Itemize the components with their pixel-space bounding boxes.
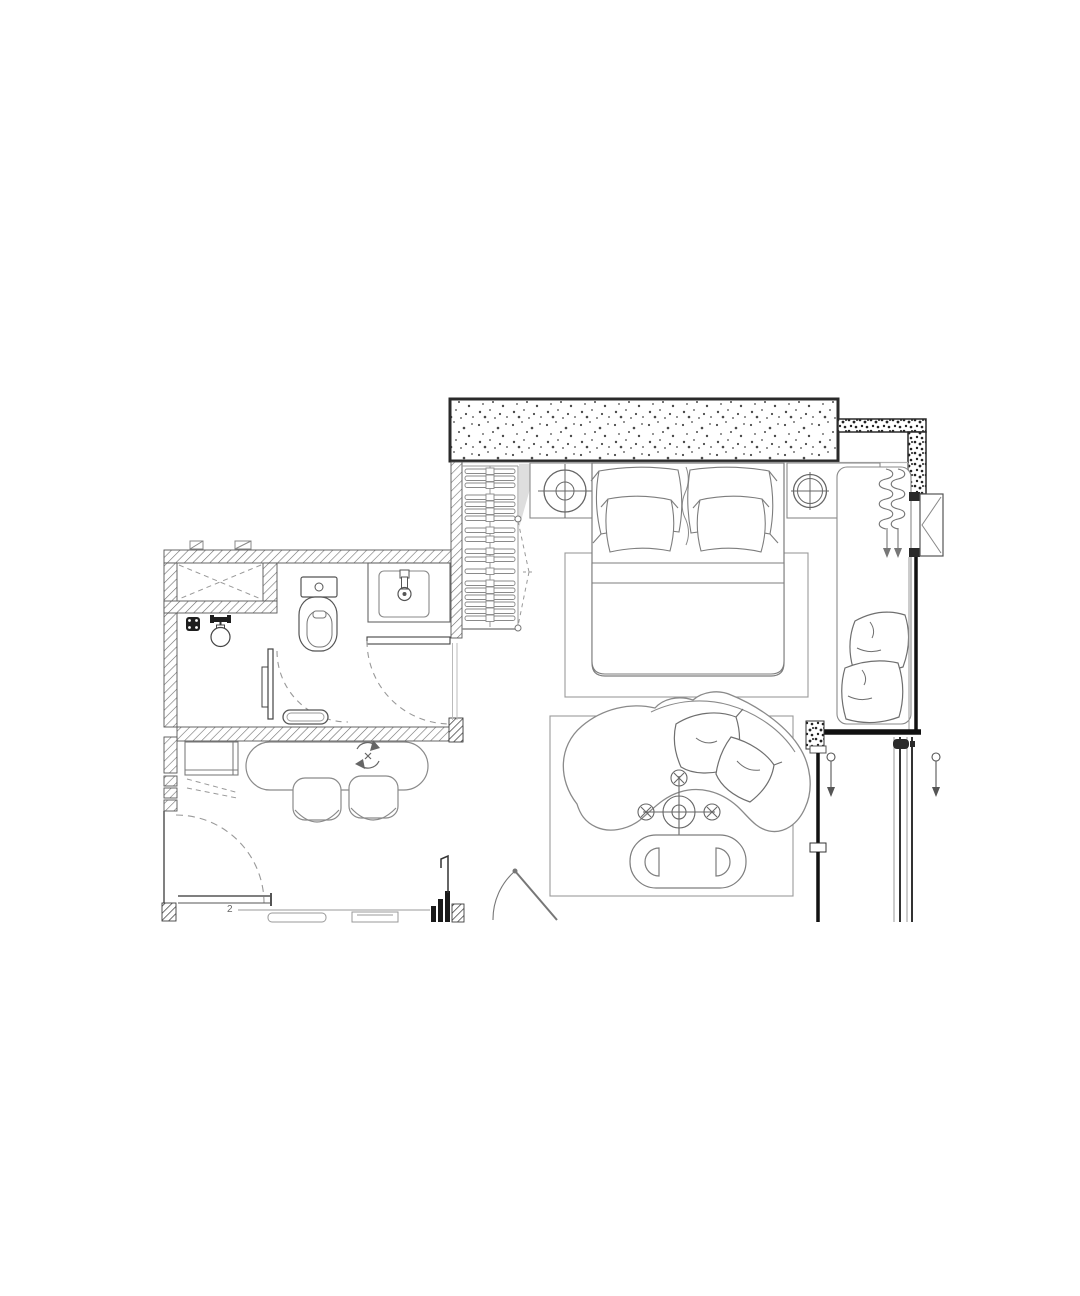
entry-console — [185, 742, 238, 775]
left-exterior-wall-upper — [164, 563, 177, 727]
bathroom — [177, 563, 450, 724]
dining-chair-2 — [349, 776, 398, 820]
bathroom-top-wall — [164, 550, 460, 563]
wall-top-marks — [190, 541, 251, 549]
door-jamb — [431, 856, 464, 922]
shower-mixer-icon — [210, 615, 231, 647]
wardrobe — [462, 464, 537, 631]
shower-bench — [283, 710, 328, 724]
washbasin — [368, 563, 450, 622]
appliance-2 — [352, 912, 398, 922]
balcony-pier — [806, 721, 824, 749]
fold-down-indication — [187, 779, 239, 798]
left-wall-block-2 — [164, 788, 177, 798]
appliance-1 — [268, 913, 326, 922]
bathroom-bottom-wall — [177, 727, 463, 741]
wardrobe-back-wall — [451, 462, 462, 638]
dining-chair-1 — [293, 778, 341, 822]
service-shaft — [177, 563, 263, 601]
concrete-band-top-right — [838, 419, 926, 432]
floor-plan-drawing: 2 — [0, 0, 1080, 1296]
double-bed — [591, 463, 784, 676]
wall-end-block — [449, 718, 463, 742]
bedroom — [530, 463, 911, 724]
casement-window-icon — [909, 492, 943, 557]
coffee-table — [630, 835, 746, 888]
window-daybed — [837, 467, 911, 724]
entry-door-swing — [176, 815, 264, 903]
shaft-right-wall — [263, 563, 277, 601]
sliding-door — [810, 737, 915, 922]
kitchen-counter — [178, 893, 430, 922]
door-stop-flag-icon — [441, 856, 448, 893]
left-exterior-wall-entry — [164, 737, 177, 773]
dimension-label: 2 — [227, 904, 233, 915]
pillow-front-right — [697, 496, 765, 552]
concrete-wall-top — [450, 399, 838, 461]
entry-dining: 2 — [176, 740, 464, 922]
toilet — [299, 577, 337, 651]
bathroom-main-door — [367, 637, 450, 724]
nightstand-left — [530, 463, 594, 518]
slide-direction-arrows — [827, 753, 940, 797]
sliding-door-handle — [893, 739, 909, 749]
left-wall-block-1 — [164, 776, 177, 786]
shaft-bottom-wall — [164, 601, 277, 613]
living-area — [493, 692, 810, 920]
left-wall-block-3 — [164, 800, 177, 811]
duvet — [592, 563, 784, 674]
angled-open-door — [493, 869, 557, 921]
floor-plan-page: 2 — [0, 0, 1080, 1296]
daybed-cushion-2 — [842, 661, 903, 723]
left-wall-bottom-block — [162, 903, 176, 921]
curved-sofa — [563, 692, 810, 832]
pillow-front-left — [606, 496, 674, 552]
shower-drain — [186, 617, 200, 631]
